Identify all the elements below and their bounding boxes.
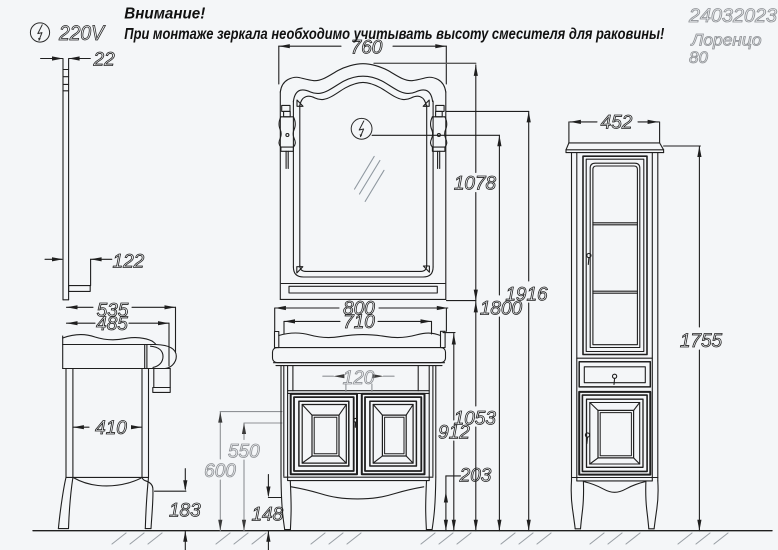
svg-text:122: 122 xyxy=(113,252,145,273)
svg-text:1755: 1755 xyxy=(680,331,723,352)
svg-text:24032023: 24032023 xyxy=(688,6,777,27)
svg-text:Лоренцо: Лоренцо xyxy=(690,31,761,50)
svg-text:Внимание!: Внимание! xyxy=(124,6,206,23)
svg-text:452: 452 xyxy=(601,113,633,134)
svg-text:410: 410 xyxy=(95,418,127,439)
svg-text:120: 120 xyxy=(343,368,375,389)
svg-text:220V: 220V xyxy=(58,22,106,45)
svg-text:При монтаже зеркала необходимо: При монтаже зеркала необходимо учитывать… xyxy=(124,26,665,43)
svg-text:912: 912 xyxy=(438,423,470,444)
svg-text:80: 80 xyxy=(689,48,708,67)
svg-text:710: 710 xyxy=(343,312,375,333)
svg-text:550: 550 xyxy=(228,442,260,463)
svg-text:148: 148 xyxy=(251,505,283,526)
svg-text:22: 22 xyxy=(93,50,116,71)
svg-text:203: 203 xyxy=(459,466,492,487)
svg-text:600: 600 xyxy=(204,461,236,482)
svg-text:1916: 1916 xyxy=(505,285,548,306)
svg-text:760: 760 xyxy=(351,38,383,59)
svg-text:485: 485 xyxy=(96,314,128,335)
svg-text:183: 183 xyxy=(169,501,201,522)
svg-text:1078: 1078 xyxy=(454,174,497,195)
